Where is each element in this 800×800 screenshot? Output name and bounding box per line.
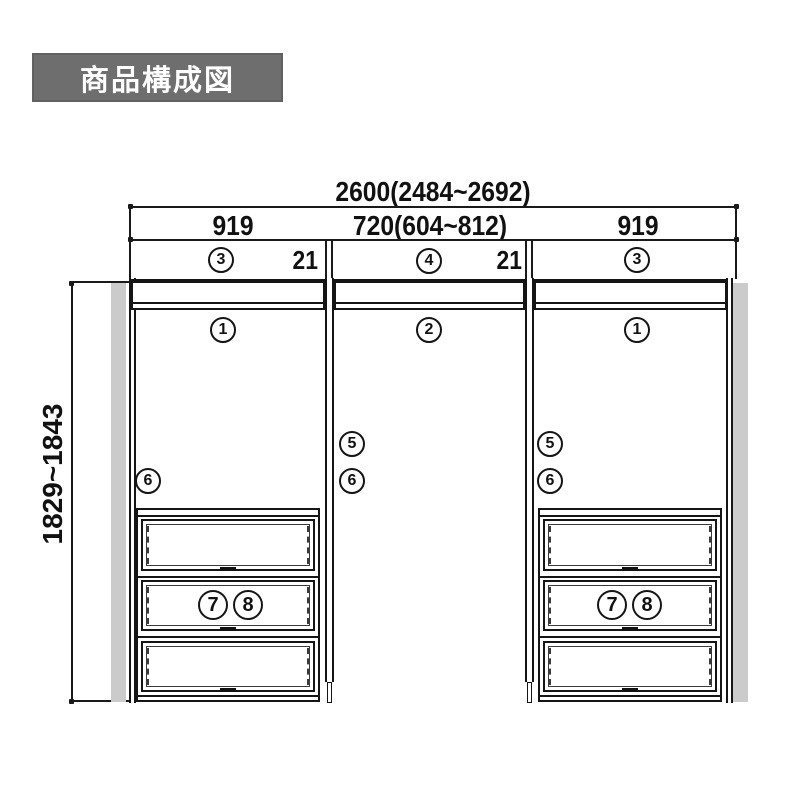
diagram-title-box: 商品構成図 <box>32 53 283 102</box>
part-marker-1-right: 1 <box>624 317 650 343</box>
drawer-slide-right <box>709 526 711 564</box>
part-marker-4: 4 <box>416 248 442 274</box>
drawer <box>141 641 315 692</box>
dim-line-height <box>71 283 73 702</box>
pole-foot-right <box>527 682 532 703</box>
chest-rail <box>138 636 318 638</box>
chest-top-rail <box>540 515 720 517</box>
part-marker-8-left: 8 <box>233 590 263 620</box>
drawer <box>141 580 315 631</box>
drawer-chest-right <box>538 508 722 702</box>
drawer <box>543 641 717 692</box>
drawer-slide-right <box>307 648 309 686</box>
chest-base-line <box>138 695 318 697</box>
part-marker-1-left: 1 <box>210 317 236 343</box>
chest-rail <box>540 636 720 638</box>
drawer-slide-left <box>147 526 149 564</box>
side-panel-right <box>726 278 733 703</box>
drawer-front-panel <box>548 646 712 687</box>
drawer-front-panel <box>146 646 310 687</box>
chest-base-line <box>540 695 720 697</box>
dim-right-width: 919 <box>594 210 682 242</box>
drawer-front-panel <box>548 585 712 626</box>
part-marker-5-left: 5 <box>339 431 365 457</box>
drawer <box>141 519 315 571</box>
drawer-handle <box>220 567 236 571</box>
drawer-slide-right <box>709 648 711 686</box>
drawer-front-panel <box>146 585 310 626</box>
part-marker-8-right: 8 <box>632 590 662 620</box>
shelf-edge-line <box>536 302 725 304</box>
chest-rail <box>138 576 318 578</box>
dim-total-width: 2600(2484~2692) <box>301 176 565 208</box>
drawer-slide-right <box>307 587 309 625</box>
drawer-slide-right <box>307 526 309 564</box>
part-marker-6-center-right: 6 <box>537 468 563 494</box>
drawer-handle <box>622 627 638 631</box>
dim-center-width: 720(604~812) <box>320 210 540 242</box>
chest-top-rail <box>138 515 318 517</box>
dim-connector-bottom <box>72 700 136 702</box>
shelf-edge-line <box>133 302 323 304</box>
part-marker-2: 2 <box>416 317 442 343</box>
left-wall <box>111 283 126 702</box>
extension-line-right <box>735 208 737 279</box>
drawer-front-panel <box>548 524 712 566</box>
dim-gap-left: 21 <box>283 245 318 276</box>
part-marker-6-far-left: 6 <box>135 468 161 494</box>
extension-line-pole1-a <box>325 241 327 279</box>
part-marker-3-left: 3 <box>208 247 234 273</box>
drawer-chest-left <box>136 508 320 702</box>
drawer-handle <box>220 627 236 631</box>
top-shelf-right <box>534 279 727 310</box>
drawer-slide-left <box>549 526 551 564</box>
dim-height-range: 1829~1843 <box>37 399 67 549</box>
part-marker-7-left: 7 <box>198 590 228 620</box>
drawer <box>543 519 717 571</box>
drawer-handle <box>622 567 638 571</box>
part-marker-3-right: 3 <box>624 247 650 273</box>
dim-line-total <box>130 206 738 208</box>
side-panel-left <box>129 278 136 703</box>
dim-left-width: 919 <box>189 210 277 242</box>
top-shelf-center <box>334 279 525 310</box>
pole-foot-left <box>327 682 332 703</box>
part-marker-7-right: 7 <box>597 590 627 620</box>
dim-gap-right: 21 <box>487 245 522 276</box>
drawer-slide-right <box>709 587 711 625</box>
extension-line-pole2-a <box>525 241 527 279</box>
drawer-handle <box>220 688 236 692</box>
extension-line-pole1-b <box>331 241 333 279</box>
drawer-handle <box>622 688 638 692</box>
drawer-slide-left <box>549 648 551 686</box>
shelf-edge-line <box>336 302 523 304</box>
drawer-slide-left <box>147 587 149 625</box>
drawer <box>543 580 717 631</box>
upright-pole-right <box>525 278 534 682</box>
chest-rail <box>540 576 720 578</box>
upright-pole-left <box>325 278 334 682</box>
part-marker-5-right: 5 <box>537 431 563 457</box>
drawer-front-panel <box>146 524 310 566</box>
product-configuration-diagram: 商品構成図 2600(2484~2692) 919 720(604~812) 9… <box>0 0 800 800</box>
extension-line-pole2-b <box>531 241 533 279</box>
right-wall <box>733 283 748 702</box>
drawer-slide-left <box>147 648 149 686</box>
diagram-title: 商品構成図 <box>80 57 235 99</box>
extension-line-left <box>129 208 131 279</box>
dim-line-sections <box>130 239 738 241</box>
top-shelf-left <box>131 279 325 310</box>
part-marker-6-center-left: 6 <box>339 468 365 494</box>
drawer-slide-left <box>549 587 551 625</box>
